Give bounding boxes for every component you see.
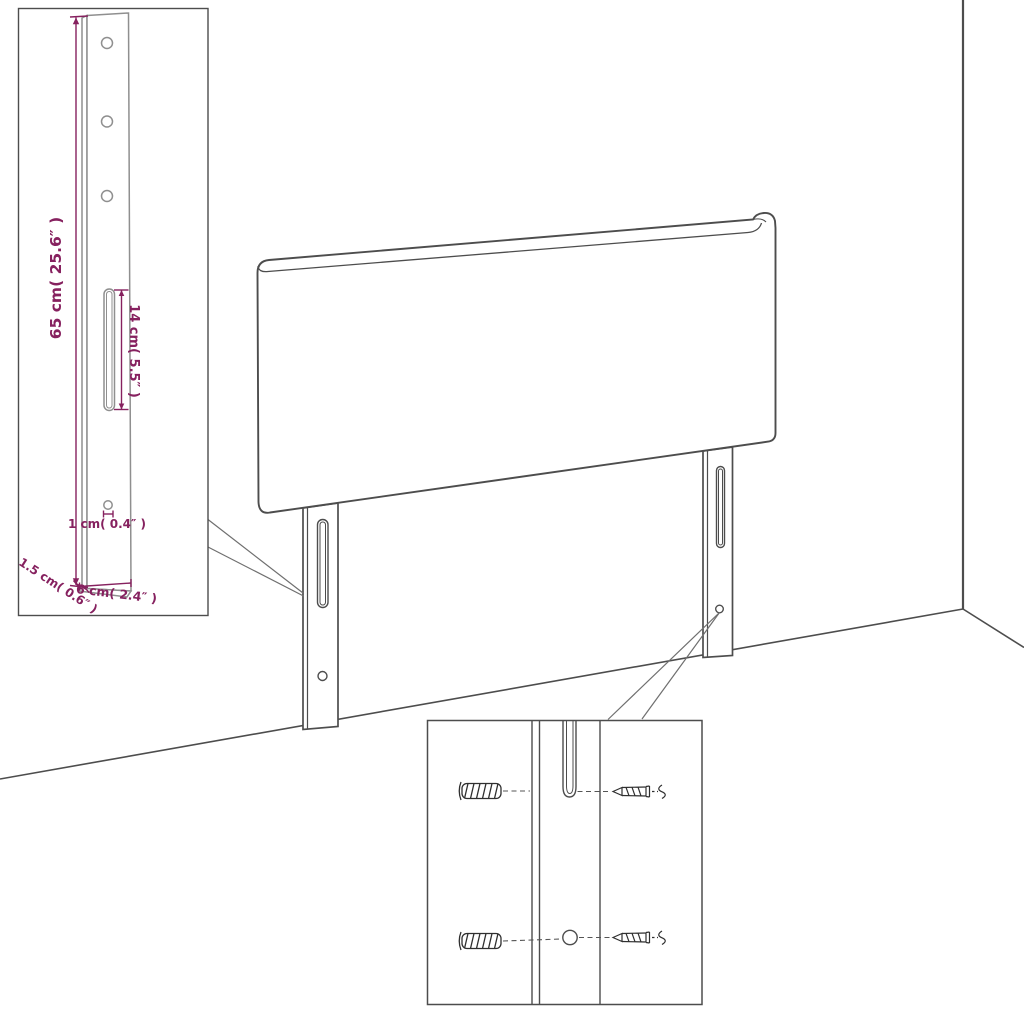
floor-line-right <box>963 609 1024 648</box>
callout-line-hole-to-inset-2 <box>642 613 720 720</box>
dim-hole-label: 1 cm( 0.4″ ) <box>68 517 146 531</box>
left-leg-hole <box>318 672 327 681</box>
inset-leg-small-hole <box>104 501 112 509</box>
mounting-inset <box>428 721 703 1005</box>
dim-height-label: 65 cm( 25.6″ ) <box>47 217 65 339</box>
dim-slot-label: 14 cm( 5.5″ ) <box>126 304 141 398</box>
headboard-panel <box>258 213 776 513</box>
leg-detail-inset: 65 cm( 25.6″ ) 14 cm( 5.5″ ) 1 cm( 0.4″ … <box>16 9 208 617</box>
inset-leg-hole-1 <box>102 38 113 49</box>
callout-line-inset-to-leg-2 <box>208 547 304 596</box>
left-leg <box>303 503 338 730</box>
callout-line-hole-to-inset-1 <box>608 613 720 720</box>
inset-leg <box>79 13 131 597</box>
inset-leg-hole-2 <box>102 116 113 127</box>
diagram-canvas: 65 cm( 25.6″ ) 14 cm( 5.5″ ) 1 cm( 0.4″ … <box>0 0 1024 1024</box>
right-leg-hole <box>716 605 724 613</box>
right-leg <box>703 447 733 658</box>
headboard-dimension-diagram: 65 cm( 25.6″ ) 14 cm( 5.5″ ) 1 cm( 0.4″ … <box>0 0 1024 1024</box>
callout-line-inset-to-leg-1 <box>208 520 303 594</box>
headboard <box>258 213 776 513</box>
dim-height-tick-top <box>70 16 88 17</box>
mounting-inset-border <box>428 721 703 1005</box>
inset-leg-hole-3 <box>102 191 113 202</box>
callout-lines <box>208 520 720 720</box>
